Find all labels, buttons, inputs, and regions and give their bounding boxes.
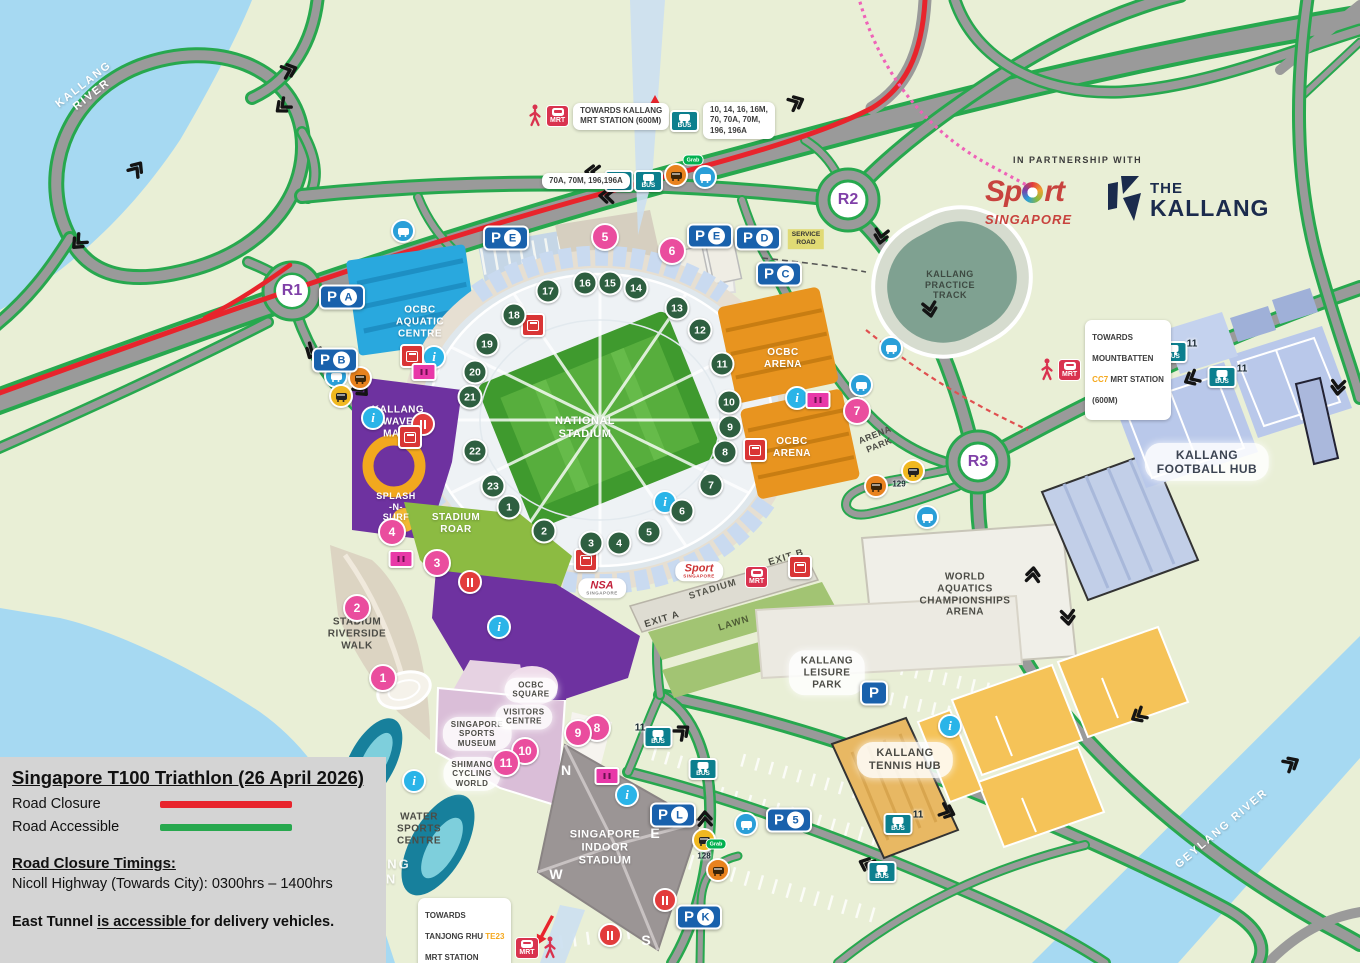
venue-label-aquatics-arena: WORLD AQUATICS CHAMPIONSHIPS ARENA xyxy=(920,571,1011,618)
location-marker: 2 xyxy=(343,594,371,622)
parking-sign-a: PA xyxy=(319,285,365,310)
parking-sign-e-west: PE xyxy=(483,226,529,251)
gate-marker: 20 xyxy=(463,360,488,385)
venue-label-leisure-park: KALLANG LEISURE PARK xyxy=(789,650,865,695)
grab-pickup-icon: Grab xyxy=(683,155,704,166)
bus-routes-left-text: 70A, 70M, 196,196A xyxy=(542,173,630,189)
compass-south: S xyxy=(641,932,650,948)
info-icon: i xyxy=(615,783,639,807)
mountbatten-mrt-sign: MRT TOWARDS MOUNTBATTEN CC7 MRT STATION … xyxy=(1040,320,1171,420)
bus-icon xyxy=(879,336,903,360)
mountbatten-sign-text: TOWARDS MOUNTBATTEN CC7 MRT STATION (600… xyxy=(1085,320,1171,420)
gate-marker: 21 xyxy=(458,385,483,410)
car-pickup-icon xyxy=(864,474,888,498)
bus-routes-top-text: 10, 14, 16, 16M, 70, 70A, 70M, 196, 196A xyxy=(703,102,775,139)
ticketing-icon xyxy=(743,438,767,462)
legend-panel: Singapore T100 Triathlon (26 April 2026)… xyxy=(0,757,386,963)
gate-marker: 4 xyxy=(607,531,632,556)
pedestrian-icon xyxy=(1040,358,1054,382)
gate-marker: 18 xyxy=(502,303,527,328)
bus-stop-icon: BUS xyxy=(670,110,699,132)
gate-marker: 3 xyxy=(579,531,604,556)
tanjong-rhu-mrt-sign: TOWARDS TANJONG RHU TE23 MRT STATION (35… xyxy=(418,898,557,963)
gate-marker: 9 xyxy=(718,415,743,440)
gate-marker: 14 xyxy=(624,276,649,301)
legend-timings-heading: Road Closure Timings: xyxy=(12,855,374,872)
bus-stop-icon: BUS xyxy=(689,758,718,780)
kallang-mrt-sign-text: TOWARDS KALLANG MRT STATION (600M) xyxy=(573,103,669,130)
stadium-mrt-station-icon: MRT xyxy=(745,566,768,588)
accessible-color-bar xyxy=(160,824,292,831)
kallang-k-icon xyxy=(1106,176,1142,227)
bus-stop-icon: BUS xyxy=(884,813,913,835)
bus-stop-icon: BUS xyxy=(868,861,897,883)
gate-marker: 17 xyxy=(536,279,561,304)
bus-stop-icon: BUS xyxy=(644,726,673,748)
the-kallang-logo: THE KALLANG xyxy=(1106,176,1269,227)
car-pickup-icon xyxy=(706,858,730,882)
info-icon: i xyxy=(938,714,962,738)
venue-label-ocbc-arena-north: OCBC ARENA xyxy=(764,347,802,371)
location-marker: 7 xyxy=(843,397,871,425)
info-icon: i xyxy=(487,615,511,639)
legend-road-accessible: Road Accessible xyxy=(12,819,374,835)
bus-stop-icon: BUS xyxy=(634,170,663,192)
venue-label-visitors-centre: VISITORS CENTRE xyxy=(495,705,552,730)
location-marker: 6 xyxy=(658,237,686,265)
sport-o-icon xyxy=(1022,182,1043,203)
compass-north: N xyxy=(561,762,571,778)
mrt-icon: MRT xyxy=(1058,359,1081,381)
taxi-stand-number: 129 xyxy=(892,480,905,489)
bus-stop-number: 11 xyxy=(1237,364,1248,375)
location-marker: 4 xyxy=(378,518,406,546)
mrt-icon: MRT xyxy=(515,937,538,959)
ticket-booth-icon xyxy=(389,550,414,568)
mrt-icon: MRT xyxy=(546,105,569,127)
location-marker: 5 xyxy=(591,223,619,251)
tanjong-rhu-sign-text: TOWARDS TANJONG RHU TE23 MRT STATION (35… xyxy=(418,898,511,963)
bus-stop-number: 11 xyxy=(913,810,924,821)
gate-marker: 6 xyxy=(670,499,695,524)
closure-color-bar xyxy=(160,801,292,808)
bus-routes-sign-top: BUS 10, 14, 16, 16M, 70, 70A, 70M, 196, … xyxy=(670,102,775,139)
venue-label-national-stadium: NATIONAL STADIUM xyxy=(555,415,615,441)
ticket-booth-icon xyxy=(595,767,620,785)
legend-road-closure: Road Closure xyxy=(12,796,374,812)
info-icon: i xyxy=(361,406,385,430)
food-icon xyxy=(458,570,482,594)
grab-pickup-icon: Grab xyxy=(706,839,727,850)
gate-marker: 2 xyxy=(532,519,557,544)
compass-west: W xyxy=(549,866,562,882)
legend-title: Singapore T100 Triathlon (26 April 2026) xyxy=(12,767,374,789)
legend-timing-line: Nicoll Highway (Towards City): 0300hrs –… xyxy=(12,876,374,892)
sport-singapore-logo: Sprt SINGAPORE xyxy=(985,175,1072,227)
food-icon xyxy=(653,888,677,912)
gate-marker: 22 xyxy=(463,439,488,464)
ticket-booth-icon xyxy=(412,363,437,381)
gate-marker: 7 xyxy=(699,473,724,498)
car-pickup-icon xyxy=(664,163,688,187)
gate-marker: 8 xyxy=(713,440,738,465)
bus-icon xyxy=(734,812,758,836)
bus-stop-number: 11 xyxy=(1187,339,1198,350)
taxi-stand-number: 128 xyxy=(697,852,710,861)
location-marker: 3 xyxy=(423,549,451,577)
bus-routes-sign-left: 70A, 70M, 196,196A BUS xyxy=(542,170,663,192)
food-icon xyxy=(598,923,622,947)
bus-icon xyxy=(849,373,873,397)
partnership-block: IN PARTNERSHIP WITH Sprt SINGAPORE THE K… xyxy=(985,155,1335,227)
parking-sign-plain: P xyxy=(860,681,888,706)
nsa-logo: NSA SINGAPORE xyxy=(578,578,626,598)
ticketing-icon xyxy=(398,425,422,449)
venue-label-football-hub: KALLANG FOOTBALL HUB xyxy=(1145,443,1269,481)
parking-sign-k: PK xyxy=(676,905,722,930)
triathlon-road-closure-map: KALLANG RIVER GEYLANG RIVER KALLANG BASI… xyxy=(0,0,1360,963)
location-marker: 9 xyxy=(564,719,592,747)
venue-label-water-sports: WATER SPORTS CENTRE xyxy=(397,811,441,846)
parking-sign-l: PL xyxy=(650,803,696,828)
gate-marker: 12 xyxy=(688,318,713,343)
venue-label-aquatic-centre: OCBC AQUATIC CENTRE xyxy=(396,304,444,339)
gate-marker: 5 xyxy=(637,520,662,545)
venue-label-ocbc-arena-south: OCBC ARENA xyxy=(773,436,811,460)
gate-marker: 10 xyxy=(717,390,742,415)
pedestrian-icon xyxy=(543,936,557,960)
bus-stop-number: 11 xyxy=(635,723,646,734)
taxi-icon xyxy=(329,384,353,408)
mrt-icon: MRT xyxy=(745,566,768,588)
legend-note: East Tunnel is accessible for delivery v… xyxy=(12,914,374,930)
gate-marker: 13 xyxy=(665,296,690,321)
ticket-booth-icon xyxy=(806,391,831,409)
location-marker: 11 xyxy=(492,749,520,777)
venue-label-tennis-hub: KALLANG TENNIS HUB xyxy=(857,742,953,778)
parking-sign-5: P5 xyxy=(766,808,812,833)
parking-sign-e-east: PE xyxy=(687,224,733,249)
roundabout-r2-label: R2 xyxy=(832,184,864,216)
parking-sign-d: PD xyxy=(735,226,781,251)
roundabout-r1-label: R1 xyxy=(276,275,308,307)
bus-icon xyxy=(693,165,717,189)
gate-marker: 1 xyxy=(497,495,522,520)
sport-singapore-small-logo: Sport SINGAPORE xyxy=(675,561,723,581)
gate-marker: 16 xyxy=(573,271,598,296)
parking-sign-c: PC xyxy=(756,262,802,287)
partnership-caption: IN PARTNERSHIP WITH xyxy=(1013,155,1335,165)
venue-label-ocbc-square: OCBC SQUARE xyxy=(504,678,557,703)
gate-marker: 19 xyxy=(475,332,500,357)
location-marker: 1 xyxy=(369,664,397,692)
roundabout-r3-label: R3 xyxy=(962,446,994,478)
service-road-label: SERVICE ROAD xyxy=(788,229,824,249)
bus-icon xyxy=(391,219,415,243)
gate-marker: 23 xyxy=(481,474,506,499)
parking-sign-b: PB xyxy=(312,348,358,373)
pedestrian-icon xyxy=(528,104,542,128)
venue-label-stadium-roar: STADIUM ROAR xyxy=(432,512,480,536)
bus-icon xyxy=(915,505,939,529)
venue-label-indoor-stadium: SINGAPORE INDOOR STADIUM xyxy=(570,829,641,868)
kallang-mrt-sign: MRT TOWARDS KALLANG MRT STATION (600M) xyxy=(528,103,669,130)
bus-stop-icon: BUS xyxy=(1208,366,1237,388)
gate-marker: 15 xyxy=(598,271,623,296)
venue-label-practice-track: KALLANG PRACTICE TRACK xyxy=(925,269,975,301)
gate-marker: 11 xyxy=(710,352,735,377)
info-icon: i xyxy=(402,769,426,793)
ticketing-icon xyxy=(788,555,812,579)
